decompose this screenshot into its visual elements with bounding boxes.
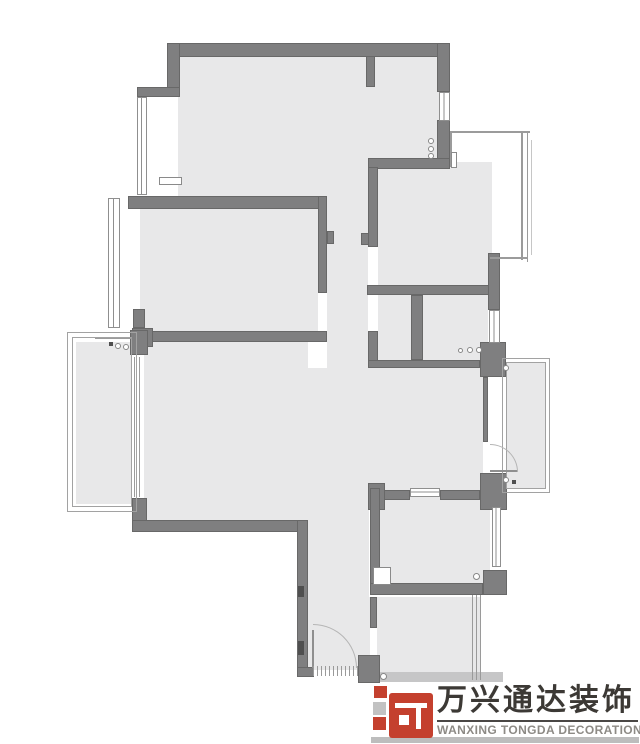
logo-square-red-top <box>374 686 387 698</box>
floor-plan-drawing <box>0 0 640 744</box>
floor-bath-middle <box>380 497 490 585</box>
balcony-left-frame-inner <box>72 337 132 507</box>
wall-living-bottom <box>132 520 308 532</box>
balcony-left-top-line <box>95 338 132 339</box>
baywindow-outer-faint <box>531 140 532 255</box>
brand-name-english: WANXING TONGDA DECORATION <box>437 723 639 737</box>
column-top-room <box>159 177 182 185</box>
wall-bath-top-left <box>382 490 410 500</box>
wall-bath-top-right <box>440 490 480 500</box>
logo-square-red-bottom <box>373 717 386 730</box>
wall-stub-corridor-left <box>361 233 369 245</box>
wall-thin-right <box>483 377 488 442</box>
company-logo: 万兴通达装饰 WANXING TONGDA DECORATION <box>371 684 639 742</box>
door-opening-top-middle <box>368 246 378 286</box>
wall-topmiddle-left <box>368 167 378 247</box>
wall-smallroom-left-lower <box>368 331 378 361</box>
door-opening-balcony-right <box>483 442 488 473</box>
wall-topmiddle-top <box>368 158 450 169</box>
mark-entry-wall-1 <box>298 586 304 597</box>
symbol-bath-drain <box>473 573 480 580</box>
symbol-balcony-right-top <box>503 365 509 371</box>
symbol-washer-1 <box>115 343 121 349</box>
window-bedroom-left <box>108 198 120 328</box>
window-right-center <box>489 310 500 343</box>
symbol-bottomroom-drain <box>380 673 387 680</box>
wall-top <box>167 43 450 57</box>
logo-glyph-square <box>399 715 409 725</box>
symbol-kitchen-3 <box>476 347 482 353</box>
symbol-circles-topright-3 <box>428 153 434 159</box>
logo-mark-icon <box>373 686 433 738</box>
floor-plan-page: 万兴通达装饰 WANXING TONGDA DECORATION <box>0 0 640 744</box>
mark-washer-box <box>109 342 113 346</box>
mark-entry-wall-2 <box>298 641 304 655</box>
floor-small-room-left <box>378 295 411 360</box>
wall-bedroom-right <box>318 196 327 293</box>
column-baywindow <box>451 152 457 168</box>
window-top-left <box>137 97 147 195</box>
wall-entry-block-right <box>358 655 380 683</box>
logo-glyph-stem <box>416 703 421 729</box>
baywindow-top-line <box>450 131 530 133</box>
wall-seg-bottomroom <box>370 597 377 628</box>
brand-name-chinese: 万兴通达装饰 <box>437 684 639 718</box>
wall-bedroom-bottom <box>152 331 327 342</box>
wall-cap-left <box>137 87 180 97</box>
logo-divider-rule <box>437 720 638 722</box>
logo-glyph-bar <box>395 703 427 708</box>
window-top-right <box>439 92 450 121</box>
symbol-kitchen-1 <box>458 348 463 353</box>
wall-divider <box>411 295 423 360</box>
corner-bath-right-bottom <box>483 570 507 595</box>
floor-bottom-room <box>368 597 480 680</box>
baywindow-right-line2 <box>527 131 528 262</box>
mark-balcony-right-dot <box>512 480 516 484</box>
floor-living-room <box>140 340 308 522</box>
slab-bottom-edge <box>380 672 503 682</box>
door-opening-bottom-room <box>370 628 377 656</box>
door-opening-bedroom <box>318 293 327 331</box>
wall-left-upper <box>167 43 180 89</box>
symbol-circles-topright-2 <box>428 146 434 152</box>
baywindow-right-line <box>521 131 523 260</box>
symbol-circles-topright-1 <box>428 138 434 144</box>
wall-center-horizontal <box>367 285 493 295</box>
logo-square-main <box>389 693 433 738</box>
wall-stub-top <box>366 56 375 87</box>
slider-line-1 <box>134 357 135 497</box>
window-bath-right <box>492 507 501 567</box>
wall-entry-bottom-left <box>297 667 314 677</box>
wall-right-center <box>488 253 500 310</box>
floor-top-room-lower <box>178 162 368 196</box>
baywindow-bottom-line <box>490 257 528 259</box>
entry-threshold-hatch <box>313 666 358 676</box>
pillar-a <box>133 309 145 328</box>
wall-jamb-corridor <box>327 231 334 244</box>
window-bath-top <box>410 488 440 497</box>
door-opening-small-room <box>368 295 378 331</box>
floor-hall <box>369 368 488 490</box>
symbol-kitchen-2 <box>467 347 473 353</box>
bottomroom-right-hatch <box>472 595 483 680</box>
symbol-balcony-right-bottom <box>503 477 509 483</box>
floor-corridor <box>327 196 368 370</box>
floor-bedroom-left <box>140 209 327 333</box>
wall-smallrooms-bottom <box>368 360 480 368</box>
symbol-washer-2 <box>123 344 129 350</box>
slider-line-2 <box>139 357 140 497</box>
floor-top-room <box>178 56 445 162</box>
logo-square-gray-mid <box>373 702 386 715</box>
floor-top-middle-room <box>368 162 492 295</box>
shower-square <box>373 567 391 585</box>
wall-bedroom-top <box>128 196 327 209</box>
wall-right-upper <box>437 43 450 92</box>
